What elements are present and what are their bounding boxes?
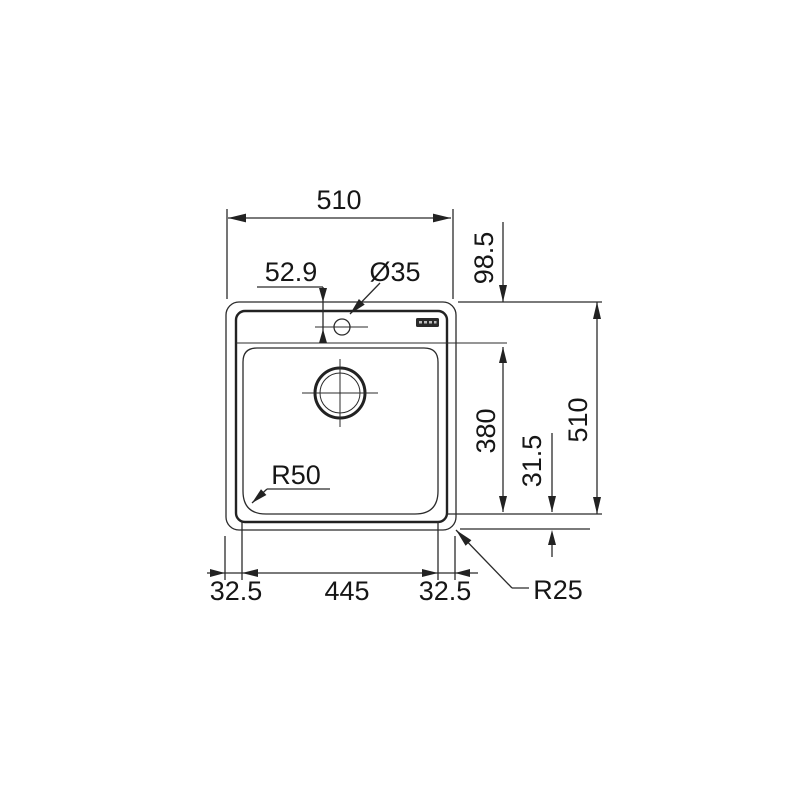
dim-label-tap-hole-diameter: Ø35 xyxy=(369,257,420,287)
dim-label-overall-width: 510 xyxy=(316,185,361,215)
dim-label-overall-depth: 510 xyxy=(563,397,593,442)
sink-technical-drawing: 510 52.9 Ø35 98.5 380 31.5 xyxy=(0,0,800,800)
dim-label-outer-corner-radius: R25 xyxy=(533,575,583,605)
dim-label-bowl-width: 445 xyxy=(324,576,369,606)
dim-label-bowl-corner-radius: R50 xyxy=(271,460,321,490)
logo-mark xyxy=(419,321,422,324)
dim-label-tap-hole-offset: 52.9 xyxy=(265,257,318,287)
dim-label-bowl-to-edge: 31.5 xyxy=(517,435,547,488)
drawing-canvas: 510 52.9 Ø35 98.5 380 31.5 xyxy=(0,0,800,800)
logo-mark xyxy=(434,321,437,324)
background xyxy=(0,0,800,800)
franke-logo xyxy=(416,318,439,327)
dim-label-bowl-depth: 380 xyxy=(471,408,501,453)
logo-mark xyxy=(424,321,427,324)
dim-label-left-edge: 32.5 xyxy=(210,576,263,606)
logo-mark xyxy=(429,321,432,324)
dim-label-tap-ledge-depth: 98.5 xyxy=(469,232,499,285)
dim-label-right-edge: 32.5 xyxy=(419,576,472,606)
